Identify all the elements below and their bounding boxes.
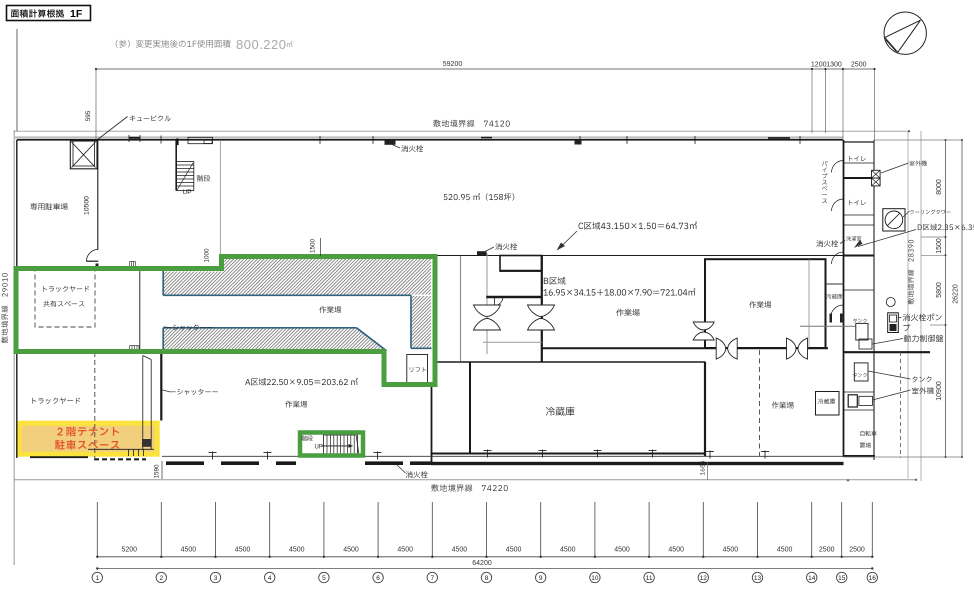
svg-text:5: 5 [322,575,326,582]
svg-text:4500: 4500 [560,547,576,554]
svg-text:7: 7 [430,575,434,582]
svg-text:4500: 4500 [777,547,793,554]
svg-text:10: 10 [591,575,599,582]
svg-text:4500: 4500 [723,547,739,554]
svg-text:59200: 59200 [443,61,463,68]
svg-text:4500: 4500 [343,547,359,554]
svg-text:3: 3 [214,575,218,582]
svg-text:16: 16 [869,575,877,582]
svg-text:1000: 1000 [204,248,211,263]
svg-text:4500: 4500 [235,547,251,554]
svg-text:800.220: 800.220 [236,37,287,52]
svg-text:1F: 1F [70,8,83,20]
svg-text:10500: 10500 [84,196,91,215]
svg-text:11: 11 [646,575,653,582]
svg-text:2500: 2500 [819,547,835,554]
svg-text:64200: 64200 [472,560,492,567]
svg-text:4500: 4500 [506,547,522,554]
svg-text:2: 2 [159,575,163,582]
svg-text:8000: 8000 [936,179,943,195]
svg-text:4: 4 [268,575,272,582]
svg-text:2500: 2500 [851,62,867,69]
svg-text:8: 8 [485,575,489,582]
svg-text:4500: 4500 [614,547,630,554]
svg-text:UP: UP [183,189,192,196]
svg-text:1: 1 [95,575,99,582]
svg-text:4500: 4500 [452,547,468,554]
svg-text:UP: UP [315,445,323,451]
svg-text:12: 12 [700,575,708,582]
svg-text:4500: 4500 [181,547,197,554]
svg-text:4500: 4500 [397,547,413,554]
svg-text:9: 9 [539,575,543,582]
svg-text:4500: 4500 [668,547,684,554]
svg-text:10900: 10900 [936,381,943,401]
svg-text:595: 595 [85,110,92,121]
svg-text:26220: 26220 [953,284,960,304]
svg-text:5200: 5200 [122,547,138,554]
svg-text:14: 14 [808,575,816,582]
svg-text:1200: 1200 [811,62,827,69]
svg-text:13: 13 [754,575,762,582]
svg-text:5800: 5800 [936,282,943,298]
svg-text:1300: 1300 [826,62,842,69]
svg-text:6: 6 [376,575,380,582]
svg-text:2500: 2500 [849,547,865,554]
svg-text:1500: 1500 [310,239,317,254]
svg-text:15: 15 [838,575,846,582]
svg-text:4500: 4500 [289,547,305,554]
svg-text:1590: 1590 [154,464,161,479]
svg-text:1500: 1500 [936,238,943,254]
